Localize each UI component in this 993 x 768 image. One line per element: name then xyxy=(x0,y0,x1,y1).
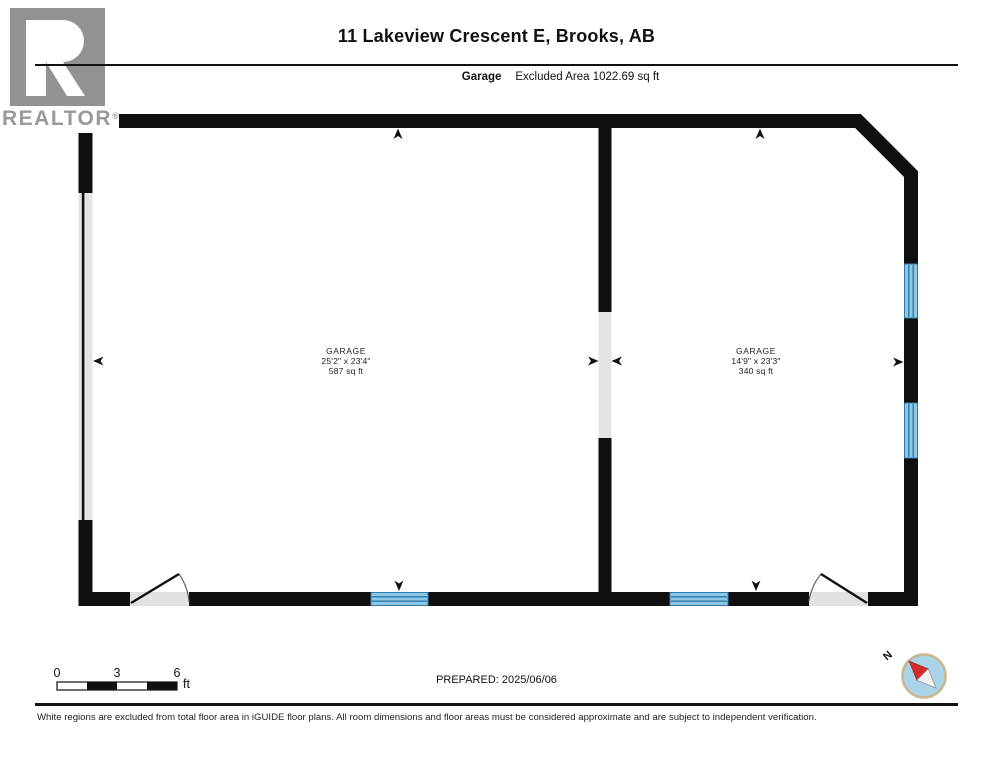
room-area: 340 sq ft xyxy=(686,366,826,376)
dim-arrow-divider-west xyxy=(588,357,599,366)
dim-arrow-down-left-room xyxy=(395,581,404,592)
garage-door-line xyxy=(82,193,85,520)
room-label-garage-right: GARAGE 14'9" x 23'3" 340 sq ft xyxy=(686,346,826,376)
floorplan-canvas xyxy=(0,0,993,768)
room-dimensions: 14'9" x 23'3" xyxy=(686,356,826,366)
window-right-upper xyxy=(905,264,918,318)
dim-arrow-divider-east xyxy=(612,357,623,366)
room-area: 587 sq ft xyxy=(276,366,416,376)
dim-arrow-left-wall xyxy=(93,357,104,366)
floor-subtitle: GarageExcluded Area 1022.69 sq ft xyxy=(64,71,993,83)
window-bottom-right xyxy=(670,593,728,606)
dim-arrow-up-right-room xyxy=(756,129,765,140)
page-title: 11 Lakeview Crescent E, Brooks, AB xyxy=(0,26,993,47)
window-bottom-left xyxy=(371,593,428,606)
prepared-date: PREPARED: 2025/06/06 xyxy=(0,674,993,686)
floor-name: Garage xyxy=(462,71,502,83)
divider-opening xyxy=(599,312,612,438)
window-right-lower xyxy=(905,403,918,458)
realtor-logo-caption: REALTOR® xyxy=(2,104,119,131)
garage-door-left-wall xyxy=(79,193,93,520)
floorplan-page: REALTOR® 11 Lakeview Crescent E, Brooks,… xyxy=(0,0,993,768)
realtor-r-icon xyxy=(10,8,105,106)
header-divider xyxy=(35,64,958,66)
registered-mark: ® xyxy=(112,111,119,121)
dim-arrow-up-left-room xyxy=(394,129,403,140)
disclaimer-text: White regions are excluded from total fl… xyxy=(37,712,967,723)
realtor-logo-text: REALTOR xyxy=(2,107,112,130)
excluded-area-text: Excluded Area 1022.69 sq ft xyxy=(515,71,659,83)
room-label-garage-left: GARAGE 25'2" x 23'4" 587 sq ft xyxy=(276,346,416,376)
room-dimensions: 25'2" x 23'4" xyxy=(276,356,416,366)
dim-arrow-right-wall xyxy=(893,358,904,367)
room-name: GARAGE xyxy=(276,346,416,356)
realtor-logo: REALTOR® xyxy=(0,0,119,133)
room-name: GARAGE xyxy=(686,346,826,356)
dim-arrow-down-right-room xyxy=(752,581,761,592)
footer-divider xyxy=(35,703,958,706)
